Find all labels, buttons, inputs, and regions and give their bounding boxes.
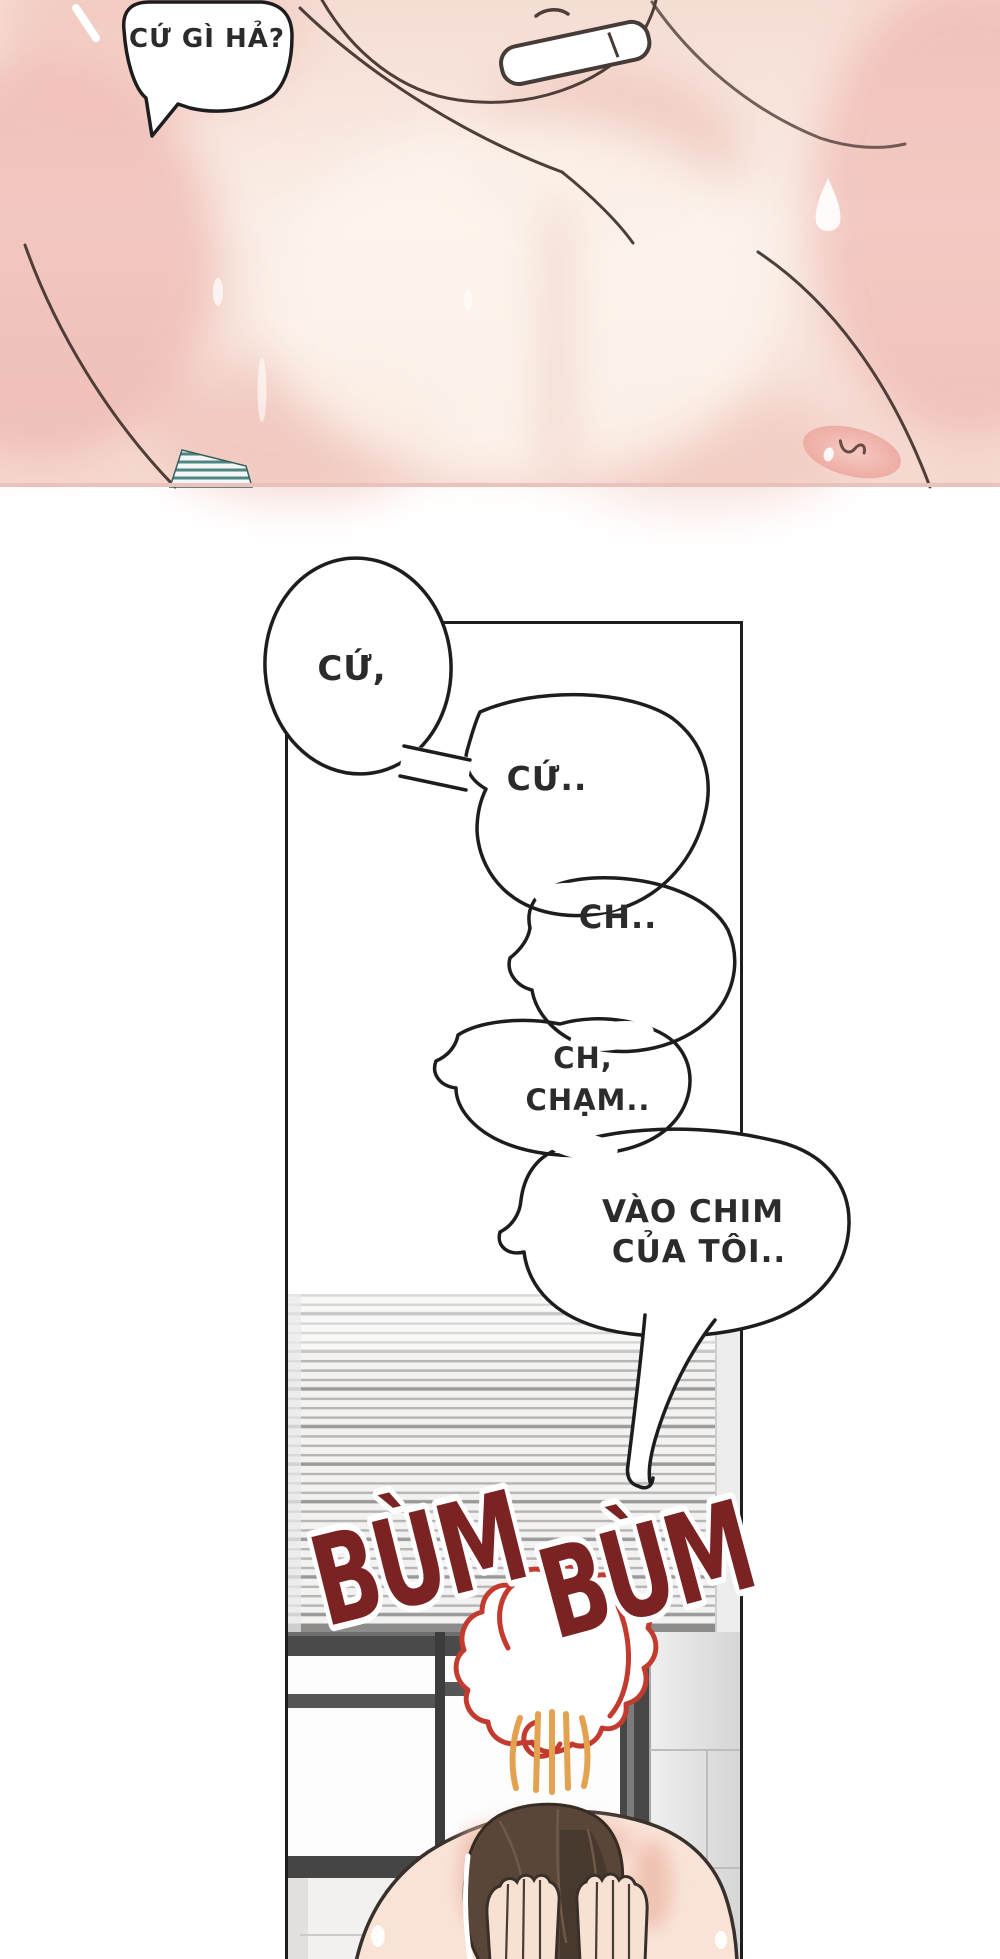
bubble-top-text: CỨ GÌ HẢ? [129,19,285,54]
right-hand [577,1874,647,1959]
bubble-2-text: CỨ.. [507,758,588,798]
bubble-4-text-line2: CHẠM.. [526,1083,651,1117]
comic-artwork: BÙM BÙM CỨ GÌ HẢ? CỨ, CỨ.. CH.. CH, CHẠM… [0,0,1000,1959]
sweat-glint [371,1925,385,1947]
panel-bottom-edge [0,483,1000,487]
bubble-5-text-line2: CỦA TÔI.. [612,1230,786,1270]
bubble-1-text: CỨ, [317,648,386,689]
bubble-5-text-line1: VÀO CHIM [602,1194,784,1230]
bubble-4-text-line1: CH, [553,1041,613,1075]
sweat-glint [715,1931,727,1949]
comic-page: BÙM BÙM CỨ GÌ HẢ? CỨ, CỨ.. CH.. CH, CHẠM… [0,0,1000,1959]
left-hand [487,1875,559,1959]
bubble-3-text: CH.. [579,898,658,936]
